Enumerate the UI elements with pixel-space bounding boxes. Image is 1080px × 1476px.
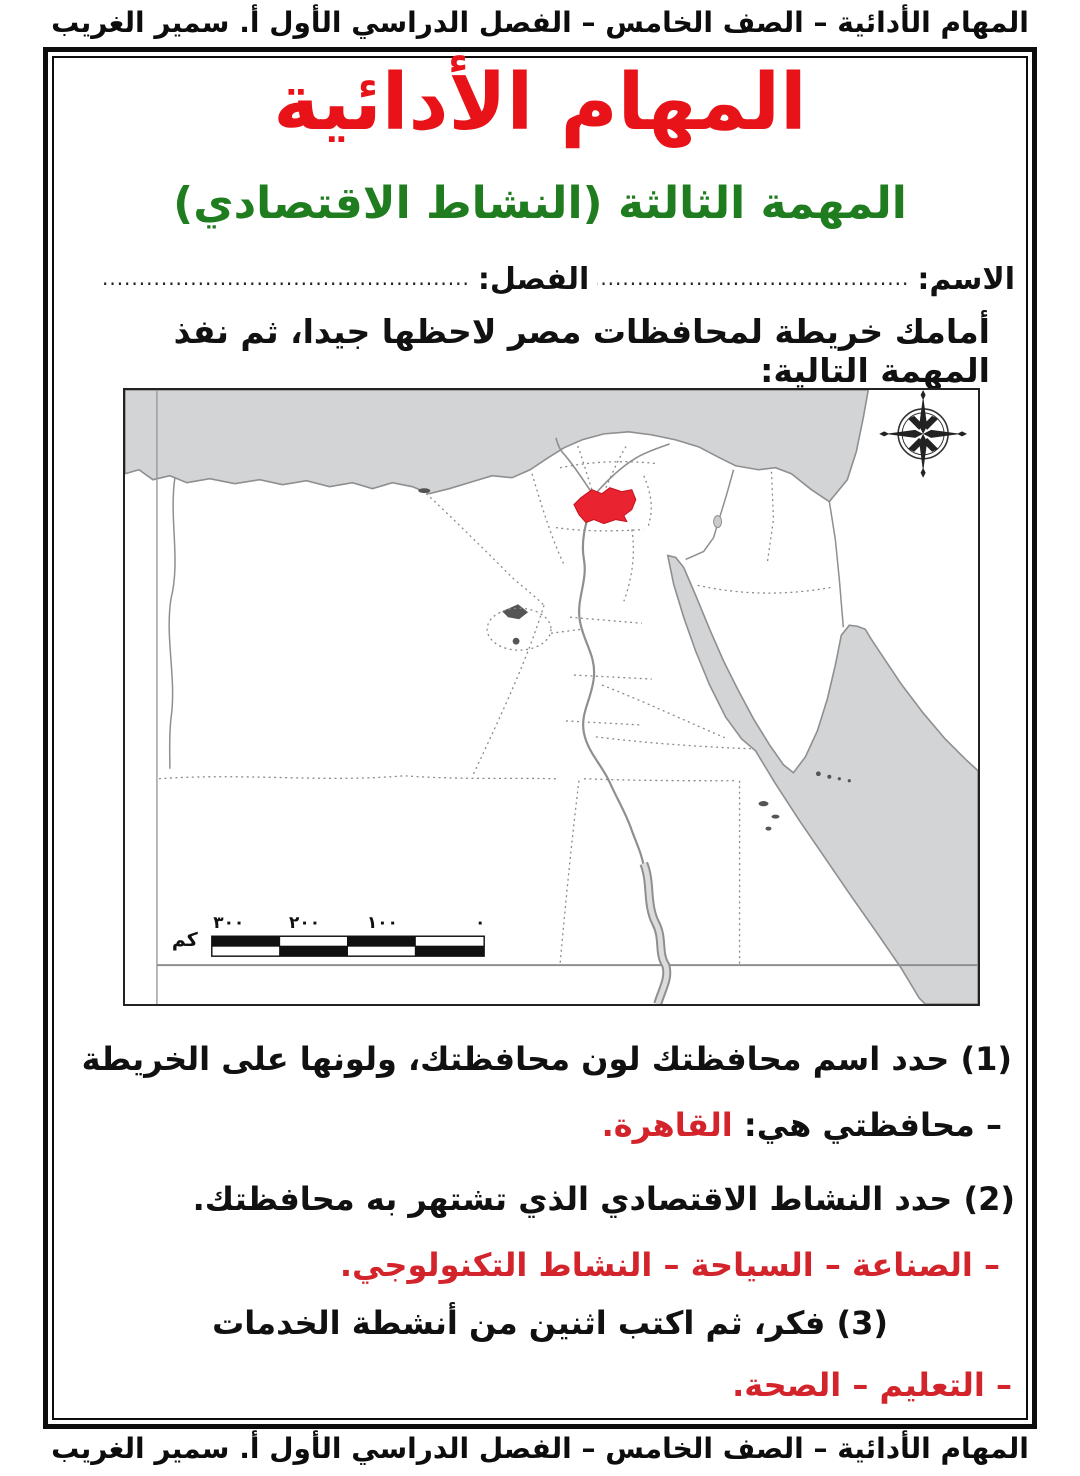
page-header: المهام الأدائية – الصف الخامس – الفصل ال… [0, 6, 1080, 39]
compass-rose-icon [879, 390, 967, 478]
scale-label-300: ٣٠٠ [213, 912, 244, 932]
class-blank: ........................................… [102, 266, 470, 290]
name-label: الاسم: [917, 262, 1015, 297]
question-3: (3) فكر، ثم اكتب اثنين من أنشطة الخدمات [40, 1304, 1020, 1342]
northeast-border-line [829, 502, 843, 628]
west-border-line [169, 478, 175, 769]
name-blank: ........................................… [597, 266, 909, 290]
scale-bar: ٣٠٠ ٢٠٠ ١٠٠ ٠ كم [172, 912, 485, 956]
scale-label-0: ٠ [475, 912, 485, 932]
answer-1-value: القاهرة. [602, 1106, 733, 1144]
task-subtitle: المهمة الثالثة (النشاط الاقتصادي) [0, 178, 1080, 229]
scale-unit-label: كم [172, 929, 199, 951]
egypt-governorates-map: ٣٠٠ ٢٠٠ ١٠٠ ٠ كم [123, 388, 980, 1006]
wadi-rayan-lake [513, 638, 520, 645]
red-sea [668, 555, 978, 1004]
cairo-highlight [574, 488, 636, 524]
nile-delta-east-branch [594, 444, 670, 496]
question-2: (2) حدد النشاط الاقتصادي الذي تشتهر به م… [40, 1180, 1020, 1218]
class-label: الفصل: [478, 262, 589, 297]
worksheet-page: { "page": { "header": "المهام الأدائية –… [0, 0, 1080, 1476]
answer-3: – التعليم – الصحة. [40, 1366, 1020, 1404]
scale-label-200: ٢٠٠ [289, 912, 320, 932]
mediterranean-sea [125, 390, 868, 502]
suez-canal [686, 470, 734, 560]
map-svg: ٣٠٠ ٢٠٠ ١٠٠ ٠ كم [125, 390, 978, 1004]
page-footer: المهام الأدائية – الصف الخامس – الفصل ال… [0, 1432, 1080, 1465]
nile-river [579, 496, 644, 867]
name-class-row: الاسم: .................................… [100, 262, 1015, 297]
fayoum-lake [502, 604, 528, 619]
alexandria-mark [418, 488, 430, 493]
page-title: المهام الأدائية [0, 58, 1080, 148]
answer-1: – محافظتي هي: القاهرة. [40, 1106, 1020, 1144]
scale-label-100: ١٠٠ [367, 912, 398, 932]
answer-2: – الصناعة – السياحة – النشاط التكنولوجي. [40, 1246, 1020, 1284]
instruction-text: أمامك خريطة لمحافظات مصر لاحظها جيدا، ثم… [60, 312, 990, 390]
answer-1-label: – محافظتي هي: [733, 1106, 1002, 1144]
bitter-lake [714, 516, 722, 528]
question-1: (1) حدد اسم محافظتك لون محافظتك، ولونها … [40, 1040, 1020, 1078]
